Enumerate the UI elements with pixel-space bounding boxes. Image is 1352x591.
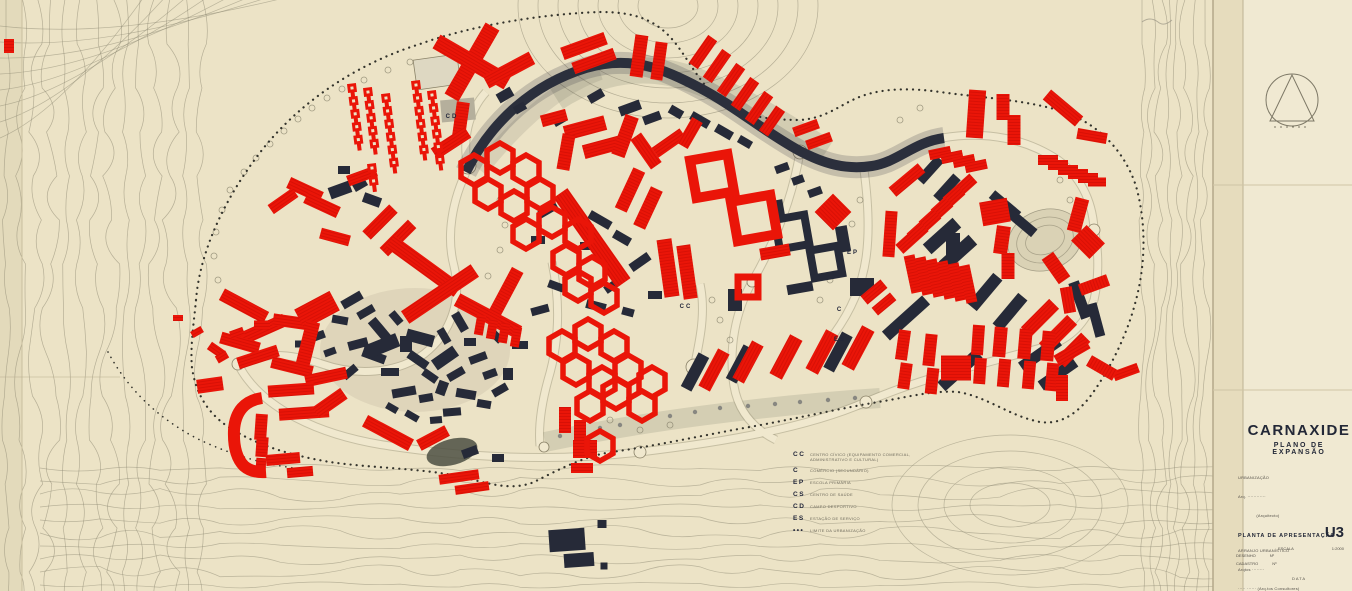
field-cadastro: CADASTRONº [1236, 561, 1277, 566]
legend-code: CC [793, 451, 810, 458]
legend-label: CENTRO DE SAÚDE [810, 491, 853, 497]
legend-code: ••• [793, 527, 810, 534]
legend-label: CENTRO CÍVICO (EQUIPAMENTO COMERCIAL, AD… [810, 451, 920, 462]
legend-item: CS CENTRO DE SAÚDE [793, 491, 943, 498]
date-label: DATA [1246, 576, 1352, 581]
legend-code: EP [793, 479, 810, 486]
legend-code: ES [793, 515, 810, 522]
legend-item: CD CAMPO DESPORTIVO [793, 503, 943, 510]
legend-item: EP ESCOLA PRIMÁRIA [793, 479, 943, 486]
region-label-es: ES [834, 337, 846, 343]
scale-value: 1:2000 [1332, 546, 1344, 551]
legend-item: ES ESTAÇÃO DE SERVIÇO [793, 515, 943, 522]
legend-label: COMÉRCIO (SECUNDÁRIO) [810, 467, 869, 473]
legend-label: CAMPO DESPORTIVO [810, 503, 857, 509]
sheet-code: U3 [1325, 524, 1344, 541]
legend-code: C [793, 467, 810, 474]
map-drawing [0, 0, 1352, 591]
legend-code: CD [793, 503, 810, 510]
field-desenho: DESENHONº [1236, 553, 1274, 558]
region-label-ep: EP [847, 250, 859, 256]
scale-row: ESCALA 1:2000 [1278, 546, 1344, 551]
scale-label: ESCALA [1278, 546, 1294, 551]
legend-code: CS [793, 491, 810, 498]
region-label-c: C [837, 307, 843, 313]
region-label-cc: CC [680, 304, 693, 310]
legend-item: C COMÉRCIO (SECUNDÁRIO) [793, 467, 943, 474]
plan-type-label: PLANTA DE APRESENTAÇÃO [1238, 533, 1336, 539]
legend-item: ••• LIMITE DA URBANIZAÇÃO [793, 527, 943, 534]
legend-item: CC CENTRO CÍVICO (EQUIPAMENTO COMERCIAL,… [793, 451, 943, 462]
plan-sheet: CD EP CC C ES CC CENTRO CÍVICO (EQUIPAME… [0, 0, 1352, 591]
title-block: CARNAXIDE PLANO DE EXPANSÃO < URBANIZAÇÃ… [1246, 0, 1352, 591]
legend: CC CENTRO CÍVICO (EQUIPAMENTO COMERCIAL,… [793, 451, 943, 539]
region-label-cd: CD [446, 114, 459, 120]
legend-label: ESCOLA PRIMÁRIA [810, 479, 851, 485]
legend-label: LIMITE DA URBANIZAÇÃO [810, 527, 866, 533]
legend-label: ESTAÇÃO DE SERVIÇO [810, 515, 860, 521]
plan-title: CARNAXIDE [1246, 422, 1352, 439]
pencil-mark: < [1246, 451, 1352, 457]
